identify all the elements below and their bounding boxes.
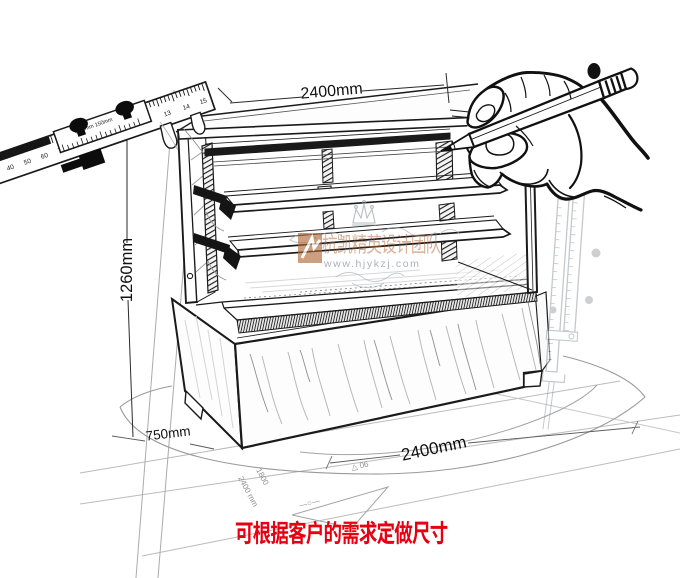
svg-text:www.hjykzj.com: www.hjykzj.com: [323, 258, 421, 270]
svg-text:1260mm: 1260mm: [118, 238, 136, 302]
